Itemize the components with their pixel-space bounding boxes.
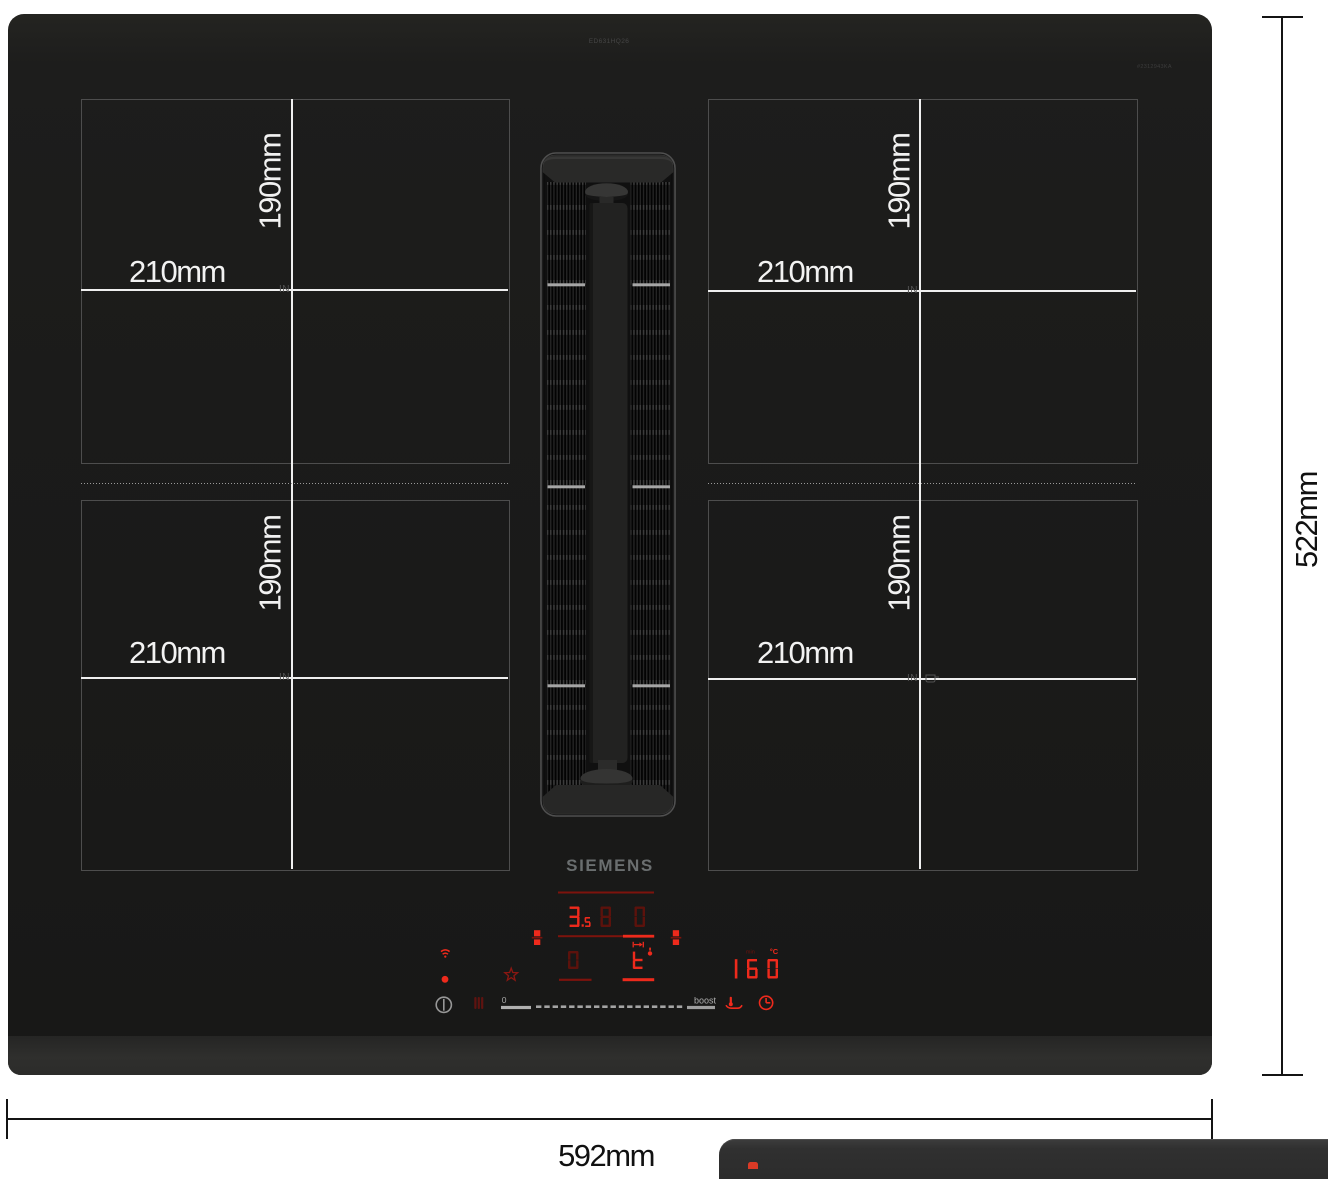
svg-text:min: min [746, 949, 755, 955]
svg-text:boost: boost [694, 995, 717, 1005]
svg-text:°C: °C [770, 947, 779, 956]
svg-text:0: 0 [502, 995, 507, 1005]
